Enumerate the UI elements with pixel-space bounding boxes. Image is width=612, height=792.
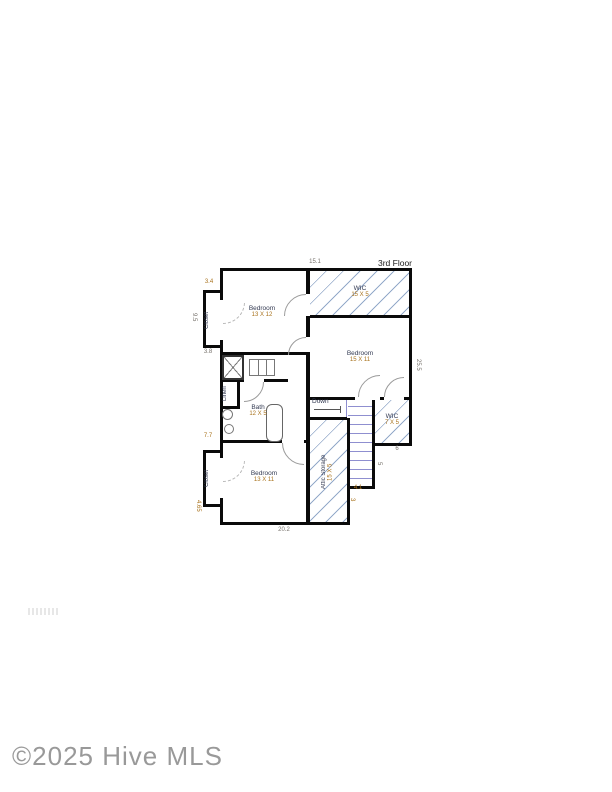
dim-step-height: 3: [349, 493, 355, 507]
dim-wic-right-width: 6: [391, 446, 403, 452]
faint-artifact: [28, 608, 58, 615]
sink-fixture: [224, 424, 234, 434]
room-label-attic-storage: Attic Storage 15 X 5: [321, 438, 335, 506]
room-size: 13 X 12: [227, 312, 297, 319]
floor-title: 3rd Floor: [368, 258, 412, 268]
room-label-bedroom3: Bedroom 13 X 11: [229, 470, 299, 484]
room-name: Closet: [204, 301, 210, 339]
room-name: Linen: [222, 381, 228, 407]
room-label-bedroom1: Bedroom 13 X 12: [227, 305, 297, 319]
room-name: Closet: [204, 459, 210, 497]
wall: [304, 440, 310, 443]
room-name: Bedroom: [227, 305, 297, 312]
room-size: 12 X 5: [232, 411, 284, 418]
wall: [310, 315, 409, 318]
door-arc-bath: [244, 382, 264, 402]
wall: [306, 355, 310, 522]
door-arc-wic-right: [384, 377, 404, 397]
room-label-linen: Linen: [222, 381, 234, 407]
room-label-wic-right: WIC 7 X 5: [371, 413, 413, 427]
wall: [306, 316, 310, 337]
room-label-closet-top: Closet: [204, 301, 217, 339]
room-size: 13 X 11: [229, 477, 299, 484]
wall: [380, 397, 384, 400]
wall: [220, 268, 223, 300]
door-arc-bedroom3: [282, 443, 304, 465]
dim-left-closet-height: 9.5: [191, 306, 197, 328]
dim-left-mid: 3.8: [198, 349, 218, 355]
wall: [310, 417, 347, 420]
room-size: 15 X 5: [327, 438, 333, 506]
wall: [237, 382, 240, 406]
room-name: WIC: [335, 285, 385, 292]
dim-left-bottom: 4.65: [195, 492, 201, 520]
wall: [220, 268, 412, 271]
down-arrow-line: [314, 409, 340, 410]
wall: [203, 504, 223, 507]
wall: [203, 290, 223, 293]
room-size: 7 X 5: [371, 420, 413, 427]
room-size: 15 X 5: [335, 292, 385, 299]
wall: [347, 418, 350, 525]
room-name: Bedroom: [325, 350, 395, 357]
dim-top: 15.1: [302, 259, 328, 265]
wall: [264, 379, 288, 382]
vanity-fixture: [249, 359, 275, 376]
wall: [306, 268, 310, 294]
room-name: WIC: [371, 413, 413, 420]
dim-left-closet-width: 3.4: [199, 279, 219, 285]
room-label-wic-top: WIC 15 X 5: [335, 285, 385, 299]
wall: [220, 522, 350, 525]
room-label-bath: Bath 12 X 5: [232, 404, 284, 418]
stair-divider-line: [346, 398, 347, 417]
dim-right-side: 25.5: [415, 352, 421, 378]
down-arrow-tick: [340, 406, 341, 413]
copyright-watermark: ©2025 Hive MLS: [12, 741, 223, 772]
room-size: 15 X 11: [325, 357, 395, 364]
wall: [203, 345, 223, 348]
dim-left-lower: 7.7: [198, 433, 218, 439]
door-arc-bedroom2: [358, 375, 380, 397]
room-label-closet-bottom: Closet: [204, 459, 217, 497]
shower-fixture: [222, 355, 244, 380]
room-label-bedroom2: Bedroom 15 X 11: [325, 350, 395, 364]
dim-stair-side: 5: [376, 456, 382, 472]
dim-step-width: 4.1: [350, 485, 366, 491]
wall: [404, 397, 409, 400]
room-name: Bedroom: [229, 470, 299, 477]
dim-bottom: 20.2: [270, 527, 298, 533]
floor-plan-page: 3rd Floor: [0, 0, 612, 792]
room-name: Bath: [232, 404, 284, 411]
wall: [203, 450, 223, 453]
wall: [220, 498, 223, 522]
staircase: [348, 398, 372, 486]
stairs-down-label: Down: [312, 398, 344, 405]
